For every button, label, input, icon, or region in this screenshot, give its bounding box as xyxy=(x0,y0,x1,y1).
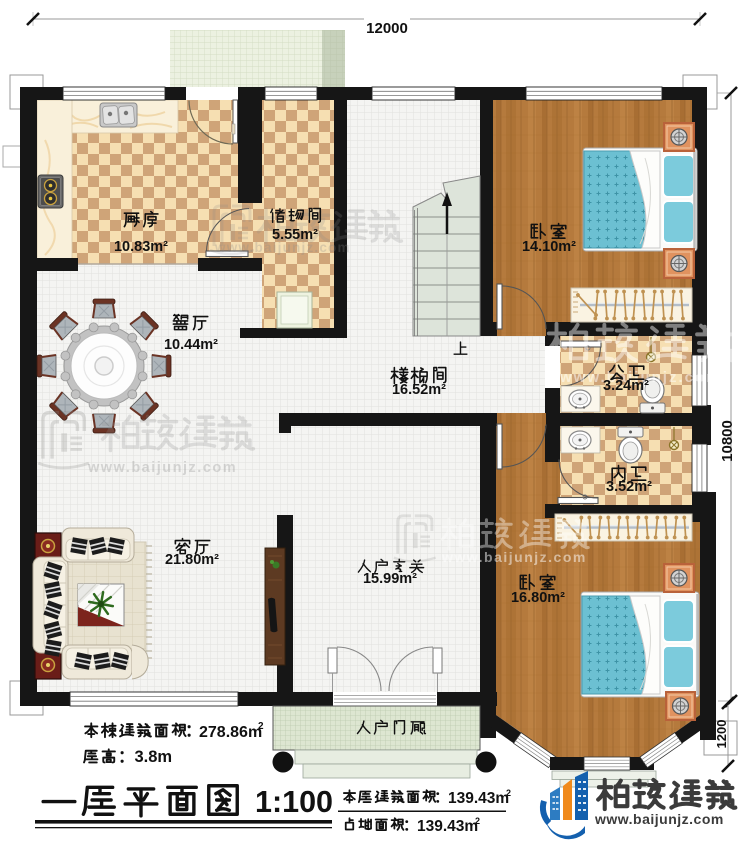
svg-text:2: 2 xyxy=(475,816,480,826)
svg-text:1:100: 1:100 xyxy=(255,785,333,819)
svg-text:www.baijunjz.com: www.baijunjz.com xyxy=(594,811,724,827)
svg-text:1200: 1200 xyxy=(714,720,729,749)
svg-text:15.99m²: 15.99m² xyxy=(363,571,417,587)
svg-text:3.24m²: 3.24m² xyxy=(603,378,649,394)
svg-text:10800: 10800 xyxy=(719,420,736,462)
svg-text:3.52m²: 3.52m² xyxy=(606,479,652,495)
svg-text:2: 2 xyxy=(258,721,264,732)
svg-text:139.43m: 139.43m xyxy=(448,790,509,807)
svg-text:21.80m²: 21.80m² xyxy=(165,552,219,568)
svg-text:10.44m²: 10.44m² xyxy=(164,337,218,353)
svg-text:www.baijunjz.com: www.baijunjz.com xyxy=(441,549,587,565)
svg-text:12000: 12000 xyxy=(366,20,408,37)
svg-text:16.52m²: 16.52m² xyxy=(392,382,446,398)
svg-text:14.10m²: 14.10m² xyxy=(522,239,576,255)
svg-text:16.80m²: 16.80m² xyxy=(511,590,565,606)
svg-text:10.83m²: 10.83m² xyxy=(114,239,168,255)
svg-text:：: ： xyxy=(434,789,449,806)
svg-text:139.43m: 139.43m xyxy=(417,818,478,835)
svg-text:：: ： xyxy=(403,817,418,834)
svg-text:278.86m: 278.86m xyxy=(199,724,262,741)
svg-text:：3.8m: ：3.8m xyxy=(118,748,172,766)
svg-text:2: 2 xyxy=(506,788,511,798)
svg-text:5.55m²: 5.55m² xyxy=(272,227,318,243)
svg-text:www.baijunjz.com: www.baijunjz.com xyxy=(87,460,237,476)
